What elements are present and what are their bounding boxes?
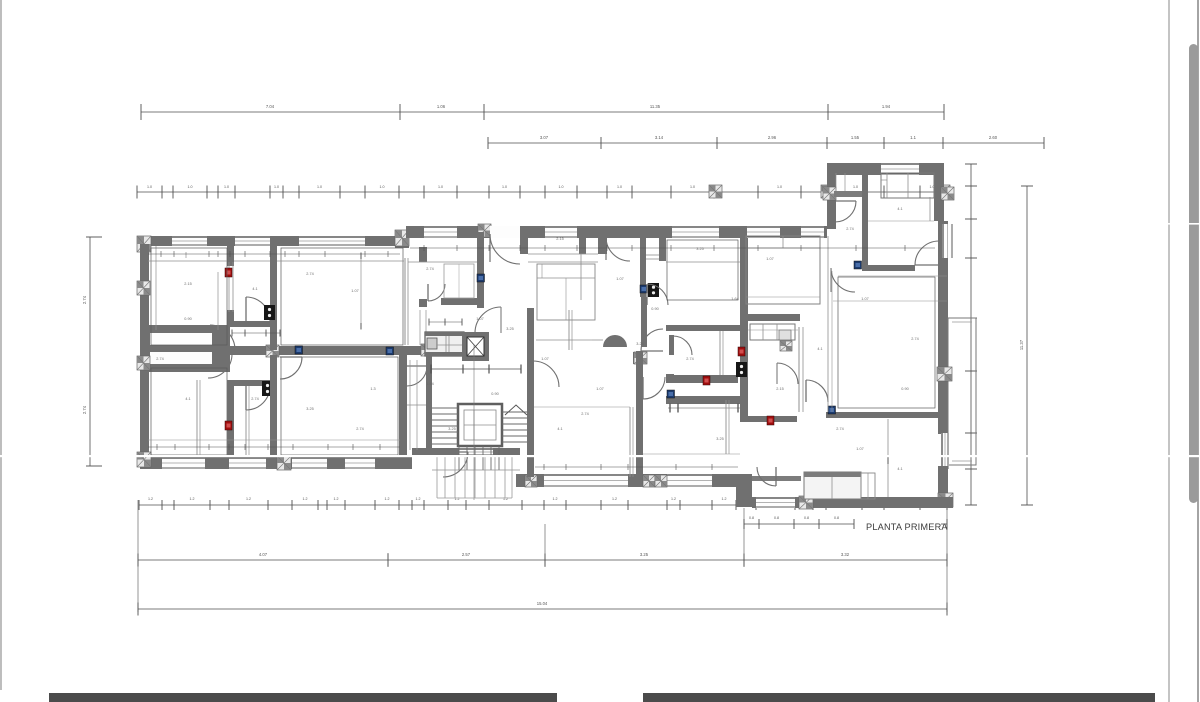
svg-text:3.07: 3.07: [540, 135, 549, 140]
svg-text:1.0: 1.0: [777, 185, 782, 189]
svg-text:2.15: 2.15: [776, 387, 783, 391]
svg-text:0.8: 0.8: [749, 516, 754, 520]
svg-text:7.04: 7.04: [266, 104, 275, 109]
svg-text:3.14: 3.14: [655, 135, 664, 140]
svg-text:1.1: 1.1: [910, 135, 916, 140]
svg-text:11.37: 11.37: [1019, 339, 1024, 350]
svg-text:1.64: 1.64: [426, 382, 433, 386]
svg-text:4.1: 4.1: [252, 287, 257, 291]
svg-text:2.74: 2.74: [686, 357, 693, 361]
svg-text:4.07: 4.07: [259, 552, 268, 557]
svg-text:4.1: 4.1: [897, 467, 902, 471]
svg-text:2.74: 2.74: [426, 267, 433, 271]
svg-text:2.74: 2.74: [306, 272, 313, 276]
svg-text:2.74: 2.74: [82, 405, 87, 414]
svg-text:1.0: 1.0: [438, 185, 443, 189]
svg-text:1.2: 1.2: [148, 497, 153, 501]
svg-text:1.07: 1.07: [351, 289, 358, 293]
svg-text:3.25: 3.25: [306, 407, 313, 411]
svg-text:0.8: 0.8: [774, 516, 779, 520]
svg-text:1.55: 1.55: [851, 135, 860, 140]
svg-text:1.0: 1.0: [690, 185, 695, 189]
svg-text:1.0: 1.0: [502, 185, 507, 189]
svg-text:1.2: 1.2: [385, 497, 390, 501]
svg-text:0.8: 0.8: [834, 516, 839, 520]
svg-text:PLANTA PRIMERA: PLANTA PRIMERA: [866, 522, 948, 532]
svg-text:1.0: 1.0: [380, 185, 385, 189]
svg-text:3.25: 3.25: [448, 427, 455, 431]
svg-text:1.2: 1.2: [612, 497, 617, 501]
svg-text:1.0: 1.0: [188, 185, 193, 189]
svg-text:1.07: 1.07: [596, 387, 603, 391]
svg-text:1.2: 1.2: [553, 497, 558, 501]
svg-text:3.32: 3.32: [841, 552, 850, 557]
svg-text:1.2: 1.2: [246, 497, 251, 501]
svg-text:2.74: 2.74: [251, 397, 258, 401]
svg-text:2.74: 2.74: [156, 357, 163, 361]
svg-text:1.0: 1.0: [617, 185, 622, 189]
svg-text:0.90: 0.90: [491, 392, 498, 396]
svg-text:1.0: 1.0: [559, 185, 564, 189]
svg-text:11.35: 11.35: [650, 104, 661, 109]
svg-text:1.0: 1.0: [147, 185, 152, 189]
svg-text:1.0: 1.0: [853, 185, 858, 189]
svg-text:3.25: 3.25: [636, 342, 643, 346]
svg-text:2.15: 2.15: [184, 282, 191, 286]
svg-text:0.8: 0.8: [804, 516, 809, 520]
svg-text:4.1: 4.1: [897, 207, 902, 211]
svg-text:1.0: 1.0: [224, 185, 229, 189]
svg-text:2.74: 2.74: [911, 337, 918, 341]
svg-text:1.2: 1.2: [416, 497, 421, 501]
svg-text:1.0: 1.0: [317, 185, 322, 189]
svg-text:1.0: 1.0: [274, 185, 279, 189]
svg-text:1.07: 1.07: [766, 257, 773, 261]
svg-text:2.74: 2.74: [846, 227, 853, 231]
svg-text:3.25: 3.25: [506, 327, 513, 331]
svg-text:0.90: 0.90: [651, 307, 658, 311]
svg-text:1.2: 1.2: [722, 497, 727, 501]
svg-text:1.06: 1.06: [437, 104, 446, 109]
svg-text:15.04: 15.04: [537, 601, 548, 606]
svg-text:1.2: 1.2: [334, 497, 339, 501]
svg-text:1.07: 1.07: [476, 317, 483, 321]
svg-text:3.25: 3.25: [716, 437, 723, 441]
svg-text:1.07: 1.07: [616, 277, 623, 281]
svg-text:4.1: 4.1: [557, 427, 562, 431]
svg-text:2.74: 2.74: [356, 427, 363, 431]
svg-text:1.2: 1.2: [303, 497, 308, 501]
svg-text:1.07: 1.07: [861, 297, 868, 301]
svg-text:1.94: 1.94: [882, 104, 891, 109]
svg-text:2.96: 2.96: [768, 135, 777, 140]
svg-text:4.1: 4.1: [817, 347, 822, 351]
svg-text:2.60: 2.60: [989, 135, 998, 140]
svg-text:1.3: 1.3: [370, 387, 375, 391]
svg-text:1.2: 1.2: [671, 497, 676, 501]
svg-text:1.2: 1.2: [190, 497, 195, 501]
svg-text:1.64: 1.64: [731, 297, 738, 301]
svg-text:0.90: 0.90: [901, 387, 908, 391]
svg-text:2.15: 2.15: [556, 237, 563, 241]
svg-text:1.07: 1.07: [856, 447, 863, 451]
svg-text:3.25: 3.25: [696, 247, 703, 251]
svg-text:4.1: 4.1: [185, 397, 190, 401]
svg-text:3.25: 3.25: [640, 552, 649, 557]
svg-text:2.74: 2.74: [581, 412, 588, 416]
svg-text:2.74: 2.74: [836, 427, 843, 431]
svg-text:2.57: 2.57: [462, 552, 471, 557]
svg-text:0.90: 0.90: [184, 317, 191, 321]
svg-text:2.74: 2.74: [82, 295, 87, 304]
svg-text:1.07: 1.07: [541, 357, 548, 361]
